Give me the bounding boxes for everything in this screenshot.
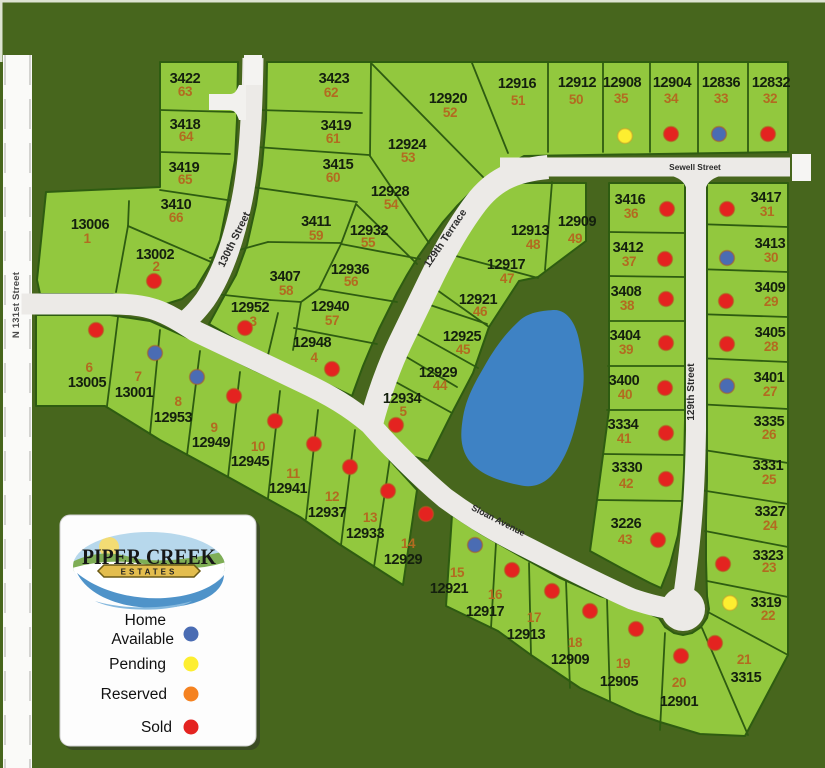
svg-text:12945: 12945 (231, 454, 270, 470)
svg-text:12916: 12916 (498, 76, 537, 92)
svg-text:64: 64 (179, 129, 194, 144)
svg-text:40: 40 (618, 387, 632, 402)
svg-text:12909: 12909 (551, 652, 590, 668)
svg-text:9: 9 (210, 420, 217, 435)
svg-text:26: 26 (762, 427, 777, 442)
svg-text:22: 22 (761, 608, 775, 623)
svg-text:10: 10 (251, 439, 265, 454)
svg-text:63: 63 (178, 84, 193, 99)
svg-text:28: 28 (764, 339, 779, 354)
svg-text:29: 29 (764, 294, 778, 309)
svg-text:12917: 12917 (466, 604, 505, 620)
svg-text:48: 48 (526, 237, 541, 252)
svg-text:44: 44 (433, 378, 448, 393)
svg-text:2: 2 (152, 259, 159, 274)
svg-text:12949: 12949 (192, 435, 231, 451)
svg-text:49: 49 (568, 231, 582, 246)
svg-text:13001: 13001 (115, 385, 154, 401)
svg-text:34: 34 (664, 91, 679, 106)
svg-text:27: 27 (763, 384, 777, 399)
svg-text:12948: 12948 (293, 335, 332, 351)
svg-text:12901: 12901 (660, 694, 699, 710)
svg-text:32: 32 (763, 91, 777, 106)
svg-text:23: 23 (762, 560, 777, 575)
svg-text:55: 55 (361, 235, 376, 250)
svg-text:39: 39 (619, 342, 633, 357)
svg-text:53: 53 (401, 150, 416, 165)
svg-text:4: 4 (310, 350, 318, 365)
svg-text:57: 57 (325, 313, 339, 328)
svg-text:ESTATES: ESTATES (121, 568, 178, 577)
svg-text:7: 7 (134, 369, 141, 384)
svg-text:12832: 12832 (752, 75, 791, 91)
svg-text:12908: 12908 (603, 75, 642, 91)
svg-text:36: 36 (624, 206, 639, 221)
svg-text:Sold: Sold (141, 719, 172, 736)
svg-text:12933: 12933 (346, 526, 385, 542)
svg-text:17: 17 (527, 610, 541, 625)
svg-text:30: 30 (764, 250, 778, 265)
svg-text:56: 56 (344, 274, 359, 289)
svg-text:37: 37 (622, 254, 636, 269)
svg-text:51: 51 (511, 93, 526, 108)
svg-text:66: 66 (169, 210, 184, 225)
svg-text:47: 47 (500, 271, 514, 286)
svg-text:12912: 12912 (558, 75, 597, 91)
svg-text:12937: 12937 (308, 505, 347, 521)
svg-text:20: 20 (672, 675, 686, 690)
svg-text:6: 6 (85, 360, 93, 375)
svg-text:14: 14 (401, 536, 416, 551)
svg-text:52: 52 (443, 105, 457, 120)
svg-text:35: 35 (614, 91, 629, 106)
svg-text:5: 5 (399, 404, 407, 419)
svg-text:12913: 12913 (507, 627, 546, 643)
svg-text:12941: 12941 (269, 481, 308, 497)
svg-text:12: 12 (325, 489, 339, 504)
svg-text:12909: 12909 (558, 214, 597, 230)
svg-text:41: 41 (617, 431, 632, 446)
svg-text:16: 16 (488, 587, 503, 602)
svg-text:11: 11 (286, 466, 300, 481)
svg-text:1: 1 (83, 231, 91, 246)
svg-text:21: 21 (737, 652, 752, 667)
svg-text:43: 43 (618, 532, 633, 547)
svg-text:62: 62 (324, 85, 338, 100)
svg-text:Home: Home (125, 612, 166, 629)
svg-text:13: 13 (363, 510, 378, 525)
svg-text:Reserved: Reserved (101, 686, 167, 703)
svg-text:12836: 12836 (702, 75, 741, 91)
svg-text:8: 8 (174, 394, 182, 409)
svg-text:50: 50 (569, 92, 583, 107)
svg-text:31: 31 (760, 204, 775, 219)
svg-text:3330: 3330 (612, 460, 643, 476)
svg-text:12921: 12921 (430, 581, 469, 597)
svg-text:12953: 12953 (154, 410, 193, 426)
svg-text:19: 19 (616, 656, 630, 671)
svg-text:Sewell Street: Sewell Street (669, 162, 721, 172)
svg-text:18: 18 (568, 635, 583, 650)
svg-text:65: 65 (178, 172, 193, 187)
svg-text:3315: 3315 (731, 670, 762, 686)
svg-text:33: 33 (714, 91, 729, 106)
svg-text:15: 15 (450, 565, 465, 580)
svg-text:59: 59 (309, 228, 323, 243)
svg-text:61: 61 (326, 131, 341, 146)
svg-text:60: 60 (326, 170, 340, 185)
svg-text:24: 24 (763, 518, 778, 533)
svg-text:38: 38 (620, 298, 635, 313)
svg-text:Pending: Pending (109, 656, 166, 673)
svg-text:12905: 12905 (600, 674, 639, 690)
svg-text:129th Street: 129th Street (686, 363, 697, 421)
svg-text:45: 45 (456, 342, 471, 357)
svg-text:25: 25 (762, 472, 777, 487)
svg-text:42: 42 (619, 476, 633, 491)
svg-text:Available: Available (111, 631, 174, 648)
svg-text:58: 58 (279, 283, 294, 298)
svg-text:N 131st Street: N 131st Street (11, 271, 22, 338)
svg-text:54: 54 (384, 197, 399, 212)
svg-text:46: 46 (473, 304, 488, 319)
svg-text:13005: 13005 (68, 375, 107, 391)
svg-text:3226: 3226 (611, 516, 642, 532)
svg-text:12929: 12929 (384, 552, 423, 568)
svg-text:12904: 12904 (653, 75, 692, 91)
